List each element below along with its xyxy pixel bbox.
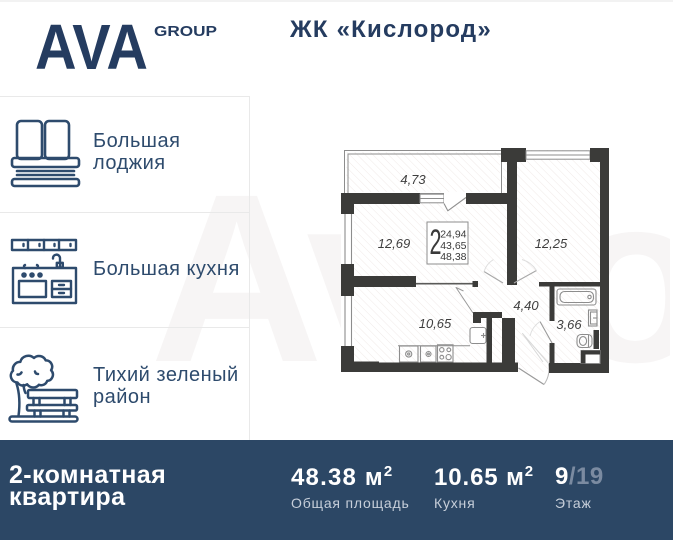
svg-text:48,38: 48,38 xyxy=(440,251,466,263)
svg-text:24,94: 24,94 xyxy=(440,229,466,241)
svg-text:10,65: 10,65 xyxy=(419,316,452,331)
svg-text:4,40: 4,40 xyxy=(513,298,539,313)
svg-text:12,25: 12,25 xyxy=(535,236,568,251)
svg-text:AVA: AVA xyxy=(35,11,148,83)
svg-text:12,69: 12,69 xyxy=(378,236,411,251)
svg-text:43,65: 43,65 xyxy=(440,240,466,252)
svg-text:3,66: 3,66 xyxy=(556,317,582,332)
svg-text:4,73: 4,73 xyxy=(400,172,426,187)
svg-text:GROUP: GROUP xyxy=(154,23,217,40)
